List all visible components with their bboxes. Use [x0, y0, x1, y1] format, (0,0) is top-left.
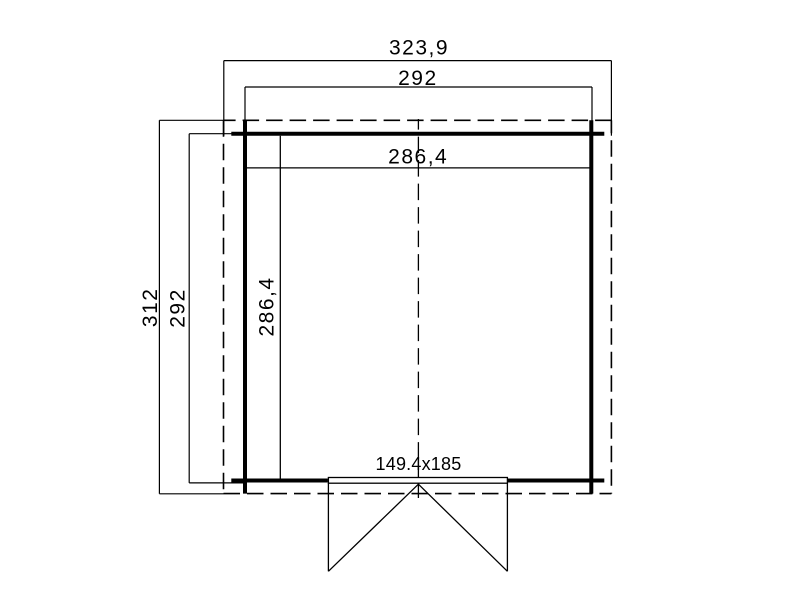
- svg-text:286,4: 286,4: [255, 276, 278, 336]
- svg-text:149.4x185: 149.4x185: [376, 454, 462, 474]
- svg-text:286,4: 286,4: [388, 145, 448, 168]
- svg-text:323,9: 323,9: [389, 37, 449, 60]
- svg-text:292: 292: [398, 67, 438, 90]
- svg-text:312: 312: [139, 288, 162, 328]
- svg-text:292: 292: [167, 288, 190, 328]
